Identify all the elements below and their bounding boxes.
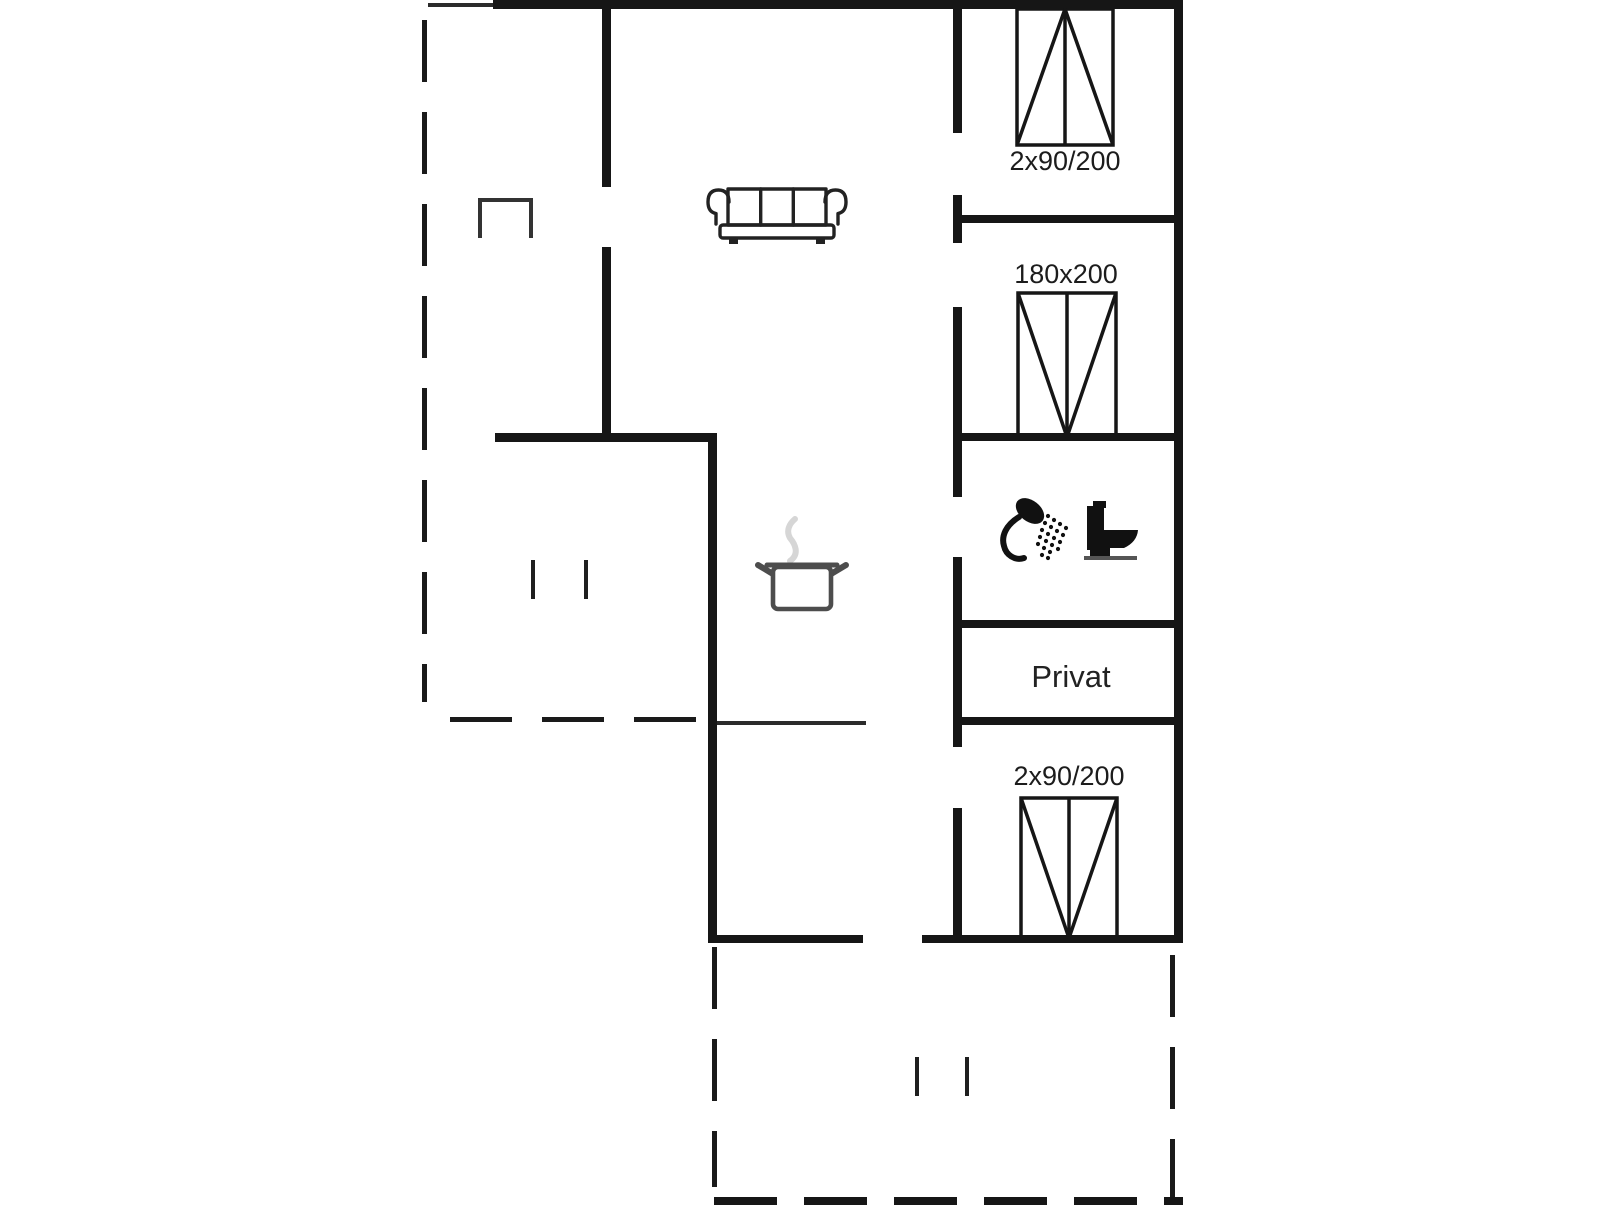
- wall-hall-partition: [717, 721, 866, 725]
- wall-bedroom1-bedroom2-divider: [953, 215, 1183, 223]
- lower-terrace-opening-tick-right: [965, 1057, 969, 1096]
- chair-icon: [478, 198, 533, 238]
- terrace-top-edge-line: [428, 3, 497, 7]
- cooking-pot-icon: [752, 515, 852, 615]
- sofa-icon: [704, 182, 850, 246]
- toilet-icon: [1080, 496, 1142, 564]
- wall-right: [1174, 0, 1183, 943]
- private-room-label: Privat: [1031, 661, 1110, 692]
- bed-size-label-bottom: 2x90/200: [1013, 763, 1124, 790]
- wall-bottom-left: [708, 935, 863, 943]
- lower-terrace-bottom-dashed: [714, 1197, 1183, 1205]
- bed-size-label-top: 2x90/200: [1009, 148, 1120, 175]
- wall-private-room-bottom: [953, 717, 1183, 725]
- wall-corridor-seg3: [953, 307, 962, 497]
- terrace-boundary-left-dashed: [422, 20, 427, 702]
- terrace-boundary-bottom-dashed: [450, 717, 708, 722]
- bed-size-label-middle: 180x200: [1014, 261, 1118, 288]
- terrace-opening-tick-left: [531, 560, 535, 599]
- wall-livingroom-left-upper: [602, 0, 611, 187]
- wall-mid-horizontal: [495, 433, 717, 442]
- terrace-opening-tick-right: [584, 560, 588, 599]
- lower-terrace-right-dashed: [1170, 955, 1175, 1205]
- double-bed-icon-bottom: [1017, 794, 1121, 942]
- wall-livingroom-left-lower: [602, 247, 611, 437]
- wall-bathroom-bottom: [953, 620, 1183, 628]
- floor-plan: 2x90/200 180x200 2x90/200 Privat: [0, 0, 1606, 1205]
- lower-terrace-left-dashed: [712, 947, 717, 1187]
- wall-corridor-seg1: [953, 0, 962, 133]
- wall-corridor-seg5: [953, 808, 962, 937]
- wall-kitchen-left: [708, 433, 717, 943]
- double-bed-icon-top: [1013, 5, 1117, 149]
- double-bed-icon-middle: [1014, 289, 1120, 441]
- shower-icon: [996, 492, 1080, 576]
- steam-icon: [788, 519, 796, 561]
- lower-terrace-opening-tick-left: [915, 1057, 919, 1096]
